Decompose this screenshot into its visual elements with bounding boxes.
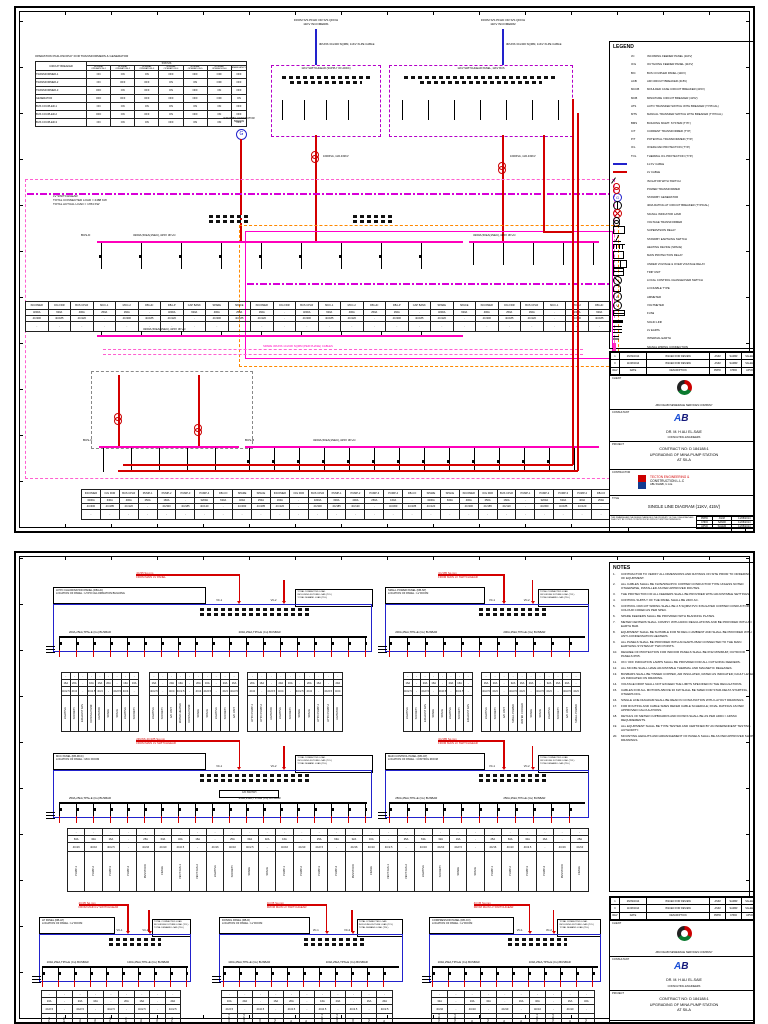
grid-cell: 4C/10 <box>85 843 102 852</box>
grid-cell-text: O/G FDR <box>279 304 290 307</box>
grid-cell: LIGHTING <box>212 696 221 732</box>
grid-cell-text: DB-CO <box>219 492 227 495</box>
grid-cell-text: - <box>393 513 394 516</box>
grid-cell-text: SPACE <box>474 867 477 876</box>
vc2-label: VC-2 <box>142 929 148 932</box>
tcl-3: TOTAL DEMAND LOAD (TDL) <box>559 927 599 930</box>
grid-cell: 4C/2.5 <box>87 687 96 696</box>
vc2-label: VC-2 <box>344 929 350 932</box>
grid-cell: 4C/2.5 <box>284 1005 300 1014</box>
dwg-row: SCALE NTS DWG. No. D184188-TC-E08-001 SH… <box>610 528 755 533</box>
grid-cell: 4C/16 <box>554 843 571 852</box>
grid-cell: - <box>258 843 275 852</box>
grid-cell-text: SPARE <box>457 867 460 876</box>
legend-label: LV CABLE <box>647 170 660 174</box>
grid-cell-text: - <box>554 317 555 320</box>
grid-cell-text: - <box>126 325 127 328</box>
grid-cell: PUMP-3 <box>176 490 195 498</box>
switchgear-box1-devices <box>282 76 370 79</box>
feeder-schedule-1: INCOMERO/G FDRBUS CPLRMCC-1MCC-2DB-HCDB-… <box>25 301 611 332</box>
grid-cell: - <box>546 991 562 998</box>
grid-row: -------- <box>404 673 473 680</box>
grid-cell-text: - <box>487 513 488 516</box>
grid-cell: - <box>513 991 529 998</box>
legend-symbol-cell <box>613 310 631 316</box>
grid-cell: 16A <box>130 680 139 687</box>
grid-cell: - <box>116 322 139 332</box>
legend-item: STANDBY EARTHING SWITCH <box>613 235 755 243</box>
op-value: ON <box>183 119 207 127</box>
grid-cell: 20A <box>70 680 79 687</box>
op-value: OFF <box>183 87 207 95</box>
grid-cell-text: PUMP-4 <box>577 492 587 495</box>
grid-cell-text: - <box>215 838 216 841</box>
grid-cell-text: 4C/16 <box>420 846 427 849</box>
project-line3: AT SILA <box>610 1008 755 1014</box>
op-value: ON <box>207 103 231 111</box>
grid-cell-text: DOSING PUMP-2 <box>336 1014 339 1024</box>
sheet1: FROM S/S PFHD OR S/S QFFIH 11KV INCOMER#… <box>14 6 755 533</box>
grid-cell-text: PENSTOCK <box>561 864 564 878</box>
grid-cell-text: - <box>309 675 310 678</box>
incomer-devices <box>109 943 161 946</box>
grid-cell: 4C/2.5 <box>176 687 185 696</box>
grid-cell: DB-CO <box>403 490 422 498</box>
bus-b-breakers <box>247 460 595 463</box>
grid-cell-text: HYPO PUMP-2 <box>327 704 330 722</box>
grid-cell: LIGHTING <box>150 696 159 732</box>
grid-cell-text: - <box>126 993 127 996</box>
grid-cell: - <box>154 829 171 836</box>
grid-cell: - <box>345 829 362 836</box>
grid-cell-text: SMALL POWER <box>575 704 578 723</box>
grid-cell: - <box>70 673 79 680</box>
circuit-schedule-r3e: ---------16A-20A16A-20A16A-20A4C/2.5-4C/… <box>41 990 181 1024</box>
grid-cell: SPACE <box>438 696 447 732</box>
legend-label: SOLID LINK <box>647 320 662 324</box>
grid-cell-text: PUMP-4 <box>388 492 398 495</box>
grid-cell-text: - <box>234 675 235 678</box>
grid-cell: 4C/4 <box>194 687 203 696</box>
grid-cell: - <box>341 322 364 332</box>
grid-cell-text: - <box>216 690 217 693</box>
grid-cell-text: AGITATOR <box>352 1018 355 1024</box>
legend-symbol-cell <box>613 235 631 242</box>
grid-cell-text: - <box>95 993 96 996</box>
grid-cell-text: 16A <box>320 1000 325 1003</box>
grid-cell: - <box>497 510 516 520</box>
legend-symbol-icon <box>613 244 625 249</box>
grid-cell-text: 4C/2.5 <box>76 1008 84 1011</box>
tcl-3: TOTAL DEMAND LOAD (TDL) <box>297 763 371 766</box>
project-label: PROJECT <box>612 992 624 995</box>
grid-cell-text: 20A <box>336 1000 341 1003</box>
op-value: ON <box>231 95 246 103</box>
sht-value: 1/2 <box>740 532 744 534</box>
circuit-schedule-r1b2: -----------16A20A-32A16A20A-32A16A20A-4C… <box>481 672 581 732</box>
legend-item: SUPERVISION RELAY <box>613 226 755 234</box>
rev-date: 26/09/2014 <box>620 898 647 905</box>
grid-cell: - <box>150 991 165 998</box>
bus-d-rating: 3200A,50kA(1SEC),415V 3P+N <box>133 234 175 238</box>
grid-cell: - <box>521 322 544 332</box>
grid-cell: SPACE <box>150 1014 165 1024</box>
grid-cell: 16A <box>88 998 103 1005</box>
grid-cell-text: - <box>91 675 92 678</box>
grid-cell: BUS CPLR <box>521 302 544 310</box>
grid-cell: - <box>120 843 137 852</box>
grid-cell: 16A <box>482 680 491 687</box>
grid-cell: 16A <box>176 680 185 687</box>
transformer1-icon <box>311 151 319 162</box>
grid-cell: INCOMER <box>26 302 49 310</box>
grid-cell: AGITATOR <box>346 1014 362 1024</box>
note-number: 17. <box>613 705 621 713</box>
consultant-logo-b: B <box>681 961 688 972</box>
grid-cell-text: 160A <box>504 499 510 502</box>
grid-cell: VENT FAN-1 <box>172 852 189 892</box>
grid-cell-text: - <box>456 993 457 996</box>
grid-cell: 4C/2.5 <box>346 1005 362 1014</box>
grid-cell: - <box>554 510 573 520</box>
note-text: ON / OFF INDICATION LAMPS SHALL BE PROVI… <box>621 661 741 665</box>
grid-cell-text: - <box>260 993 261 996</box>
grid-cell: - <box>289 510 308 520</box>
busbar-label-left: 250A,25kA,TPN+E (Cu) BUSBAR <box>69 796 111 800</box>
grid-cell-text: 4C/10 <box>437 846 444 849</box>
rev-apvd: SALEM <box>742 360 756 367</box>
grid-cell-text: 20A <box>223 682 228 685</box>
grid-cell: - <box>432 829 449 836</box>
legend-label: VOLTAGE TRANSFORMER <box>647 220 682 224</box>
grid-cell: 4C/4 <box>545 687 554 696</box>
grid-cell: SPACE <box>258 852 275 892</box>
client-section: CLIENT ABU DHABI SEWERAGE SERVICES COMPA… <box>610 376 755 410</box>
grid-cell: AGITATOR <box>96 696 105 732</box>
grid-cell: - <box>519 829 536 836</box>
dwg-no-cell: DWG. No. D184188-TC-E08-001 <box>629 532 731 534</box>
grid-cell-text: 4C/185 <box>325 317 333 320</box>
grid-cell-text: - <box>134 675 135 678</box>
grid-cell: 4C/16 <box>206 843 223 852</box>
grid-cell-text: SOCKETS <box>439 865 442 877</box>
grid-cell-text: LIGHTING <box>485 707 488 719</box>
grid-cell-text: - <box>147 513 148 516</box>
grid-cell-text: - <box>475 838 476 841</box>
bus-c-feeders <box>103 448 235 472</box>
legend-symbol-icon <box>613 310 625 316</box>
grid-cell: - <box>318 322 341 332</box>
client-logo-icon <box>677 926 692 941</box>
grid-cell: - <box>268 991 284 998</box>
grid-cell-text: - <box>567 675 568 678</box>
grid-cell-text: - <box>406 831 407 834</box>
grid-cell: - <box>267 680 277 687</box>
op-value: ON <box>159 111 183 119</box>
grid-cell-text: 20A <box>529 682 534 685</box>
grid-cell: - <box>578 991 594 998</box>
grid-cell-text: 3200A <box>87 499 95 502</box>
contractor-sub: ABU DHABI, U.A.E. <box>650 483 689 486</box>
grid-cell-text: - <box>504 675 505 678</box>
grid-cell-text: - <box>531 690 532 693</box>
grid-cell-text: PUMP-3 <box>318 866 321 876</box>
grid-cell-text: INCOMER <box>31 304 43 307</box>
grid-cell: - <box>467 843 484 852</box>
grid-row: 16A20A-16A16A20A-16A16A <box>62 680 139 687</box>
grid-cell: SPARE <box>206 302 229 310</box>
grid-cell: 20A <box>165 998 181 1005</box>
note-text: ALL MCCBs SHALL HAVE ADJUSTABLE THERMAL … <box>621 667 732 671</box>
op-value: ON <box>87 103 111 111</box>
grid-cell-text: 250A <box>145 499 151 502</box>
note-item: 13. BUSBARS SHALL BE TINNED COPPER, AIR … <box>613 673 755 681</box>
grid-cell-text: - <box>449 505 450 508</box>
grid-cell-text: 4C/185 <box>257 505 265 508</box>
feed-drop-2 <box>283 580 285 602</box>
grid-cell: - <box>230 673 239 680</box>
grid-cell: VENT FAN-1 <box>380 852 397 892</box>
grid-cell-text: SOCKETS <box>161 707 164 719</box>
grid-cell: PUMP-2 <box>157 490 176 498</box>
grid-cell-text: PUMP-3 <box>526 866 529 876</box>
grid-row: 16A-20A16A-20A16A-20A16A <box>150 680 239 687</box>
legend-label: 11 KV CABLE <box>647 162 664 166</box>
grid-cell-text: 16A <box>232 682 237 685</box>
grid-cell-text: BUS CPLR <box>122 492 135 495</box>
grid-cell-text: - <box>582 513 583 516</box>
note-text: ALL CABLES SHALL BE XLPE/SWA/PVC COPPER … <box>621 583 755 591</box>
grid-cell: - <box>157 510 176 520</box>
grid-cell-text: - <box>492 831 493 834</box>
grid-cell: 4C/2.5 <box>311 843 328 852</box>
rev-apvd: SALEM <box>742 905 756 912</box>
grid-cell: 4C/10 <box>293 843 310 852</box>
grid-cell-text: - <box>232 831 233 834</box>
grid-cell-text: SOCKETS <box>458 707 461 719</box>
grid-cell: 4C/2.5 <box>482 687 491 696</box>
grid-cell-text: - <box>384 993 385 996</box>
note-item: 4. CONTROL SUPPLY OF THE PANEL SHALL BE … <box>613 599 755 603</box>
legend-abbr: O/G <box>631 62 647 66</box>
grid-cell-text: - <box>553 993 554 996</box>
grid-cell-text: SPACE <box>266 867 269 876</box>
grid-cell-text: 4C/2.5 <box>45 1008 53 1011</box>
grid-cell-text: - <box>464 325 465 328</box>
grid-cell-text: - <box>189 675 190 678</box>
grid-cell: - <box>158 680 167 687</box>
grid-cell: - <box>228 322 251 332</box>
rev-no: 0 <box>611 360 620 367</box>
grid-cell: 4C/2.5 <box>230 687 239 696</box>
grid-cell-text: 32A <box>511 682 516 685</box>
grid-cell: SPACE <box>536 696 545 732</box>
rev-desc: ISSUED FOR REVIEW <box>647 898 710 905</box>
grid-cell-text: DB-CO <box>408 492 416 495</box>
grid-cell: - <box>68 829 85 836</box>
legend-item: STANDBY GENERATOR <box>613 193 755 201</box>
rev-h: DATE <box>620 912 647 919</box>
schedule-grid: INCOMERO/G FDRBUS CPLRPUMP-1PUMP-2PUMP-3… <box>81 489 611 520</box>
legend-item: SIGNAL WIRING CONNECTION <box>613 342 755 350</box>
grid-cell-text: MCC-2 <box>348 304 356 307</box>
grid-cell: - <box>130 687 139 696</box>
project-lines: CONTRACT NO: D 184188:1 UPGRADING OF MIN… <box>610 997 755 1014</box>
grid-cell: 16A <box>404 680 413 687</box>
note-number: 10. <box>613 651 621 659</box>
grid-cell-text: - <box>416 690 417 693</box>
grid-cell: - <box>299 991 315 998</box>
grid-cell: 16A <box>121 680 130 687</box>
grid-cell: 16A <box>87 680 96 687</box>
grid-cell-text: 63A <box>421 838 426 841</box>
grid-cell-text: PUMP-3 <box>180 492 190 495</box>
grid-cell: DOSING PUMP-2 <box>237 1014 253 1024</box>
grid-cell: - <box>448 1005 464 1014</box>
grid-cell: 20A <box>333 680 343 687</box>
legend-item: LV CABLE <box>613 168 755 176</box>
grid-cell-text: - <box>198 675 199 678</box>
grid-cell: 4C/2.5 <box>267 687 277 696</box>
grid-cell: LIGHTING <box>415 852 432 892</box>
grid-cell-text: 20A <box>565 682 570 685</box>
grid-cell-text: - <box>416 675 417 678</box>
grid-cell: MCC-2 <box>341 302 364 310</box>
grid-cell: - <box>137 829 154 836</box>
grid-cell: A/C UNIT <box>167 696 176 732</box>
grid-cell: 20A <box>330 998 346 1005</box>
legend-item: MTS MANUAL TRANSFER SWITCH WITH BREAKER … <box>613 110 755 118</box>
grid-cell: - <box>330 1005 346 1014</box>
panel-name-box: SMALL POWER PANEL (DB-SP)LOCATION OF PAN… <box>385 587 485 604</box>
bus-c-label: BUS-C <box>83 439 92 443</box>
feed-drop-1 <box>529 904 531 932</box>
grid-cell-text: - <box>374 317 375 320</box>
legend-abbr: MCCB <box>631 87 647 91</box>
grid-cell-text: 4C/2.5 <box>319 1008 327 1011</box>
grid-cell: - <box>429 687 438 696</box>
outgoing-red-stubs <box>432 980 597 987</box>
schedule-grid: ----------16A-20A16A-20A16A-20A16A4C/2.5… <box>149 672 239 732</box>
grid-cell: - <box>500 680 509 687</box>
note-number: 5. <box>613 605 621 613</box>
grid-cell-text: - <box>126 1008 127 1011</box>
grid-cell-text: DB-HC <box>595 304 603 307</box>
grid-cell-text: - <box>216 325 217 328</box>
grid-cell-text: - <box>229 993 230 996</box>
grid-cell: LIGHTING <box>206 852 223 892</box>
grid-cell: SOCKETS <box>221 696 230 732</box>
grid-cell-text: 32A <box>535 1000 540 1003</box>
grid-cell: - <box>453 322 476 332</box>
grid-cell-text: - <box>74 675 75 678</box>
grid-cell-text: 4C/120 <box>200 505 208 508</box>
consultant-name: DR. M. H ALI EL-SAIE <box>610 978 755 982</box>
grid-cell: 16A <box>42 998 57 1005</box>
grid-cell: 4C/2.5 <box>203 687 212 696</box>
earth-icon <box>46 812 55 819</box>
transformer3-icon <box>114 413 122 424</box>
schedule-grid: ------------------------------63A32A16A-… <box>67 828 589 892</box>
grid-cell: - <box>562 991 578 998</box>
earth-icon <box>212 976 221 983</box>
legend-item: HEATING DEVICE (SPACE) <box>613 243 755 251</box>
grid-cell-text: PUMP-2 <box>162 492 172 495</box>
grid-cell-text: 63A <box>161 838 166 841</box>
rev-h: DATE <box>620 367 647 374</box>
grid-cell: - <box>293 829 310 836</box>
red-run-1 <box>123 464 573 466</box>
grid-cell: - <box>296 322 319 332</box>
schedule-grid: -----------16A20A-32A16A20A-32A16A20A-4C… <box>481 672 581 732</box>
grid-cell: - <box>546 1005 562 1014</box>
grid-cell-text: SPARE <box>503 1020 506 1024</box>
grid-cell: - <box>464 680 473 687</box>
grid-cell-text: 20A <box>72 682 77 685</box>
grid-cell-text: SPACE <box>308 709 311 718</box>
grid-cell: 16A <box>361 998 377 1005</box>
grid-cell-text: 3200A <box>427 499 435 502</box>
legend-label: INCOMING FEEDER PANEL (11KV) <box>647 54 692 58</box>
sheet2-content: NOTES 1. CONTRACTOR TO VERIFY ALL DIMENS… <box>23 560 746 1015</box>
grid-cell: - <box>480 991 496 998</box>
grid-cell-text: 16A <box>195 838 200 841</box>
grid-cell: - <box>429 673 438 680</box>
grid-cell-text: - <box>374 325 375 328</box>
sheet-cell: SHT 1/2 <box>731 528 746 533</box>
grid-cell: SPARE <box>429 696 438 732</box>
grid-cell: - <box>572 673 581 680</box>
grid-cell-text: BUS CPLR <box>300 304 313 307</box>
legend-symbol-cell <box>613 251 631 259</box>
grid-cell-text: 4C/2.5 <box>385 846 393 849</box>
grid-cell-text: COMPRESSOR-2 <box>552 1014 555 1024</box>
grid-cell-text: - <box>419 325 420 328</box>
transformer4-icon <box>194 424 202 435</box>
rev-label: REV <box>748 532 753 534</box>
grid-cell: - <box>268 1005 284 1014</box>
grid-cell-text: - <box>586 1008 587 1011</box>
grid-cell: 63A <box>328 836 345 843</box>
grid-cell-text: LIGHTING <box>152 707 155 719</box>
grid-cell: 4C/2.5 <box>172 843 189 852</box>
schedule-grid: ----------32A-16A32A-16A32A-16A32A4C/10-… <box>431 990 595 1024</box>
note-text: CONTROL CIRCUIT WIRING SHALL BE 2.5 SQMM… <box>621 605 755 613</box>
grid-cell-text: - <box>157 993 158 996</box>
grid-cell: 16A <box>230 680 239 687</box>
grid-cell-text: 400A <box>79 311 85 314</box>
panel-location: LOCATION OF PANEL : LV ROOM <box>222 922 307 925</box>
grid-cell-text: VENT FAN-1 <box>387 864 390 879</box>
grid-cell: - <box>384 510 403 520</box>
grid-cell: - <box>158 673 167 680</box>
grid-cell: CRANE <box>154 852 171 892</box>
grid-cell-text: - <box>154 675 155 678</box>
grid-cell: 16A <box>554 680 563 687</box>
grid-cell: 16A <box>513 998 529 1005</box>
grid-cell: 16A <box>150 680 159 687</box>
grid-cell-text: - <box>189 682 190 685</box>
legend-symbol-icon <box>613 251 624 259</box>
drawing-title: SINGLE LINE DIAGRAM (11KV, 415V) <box>610 504 755 509</box>
grid-cell: 25A <box>484 836 501 843</box>
grid-cell: 32A <box>509 680 518 687</box>
grid-cell-text: - <box>562 831 563 834</box>
grid-cell: - <box>563 673 572 680</box>
legend-item: P/T POTENTIAL TRANSFORMER (TYP.) <box>613 135 755 143</box>
grid-cell: 63A <box>501 836 518 843</box>
grid-cell-text: - <box>76 831 77 834</box>
